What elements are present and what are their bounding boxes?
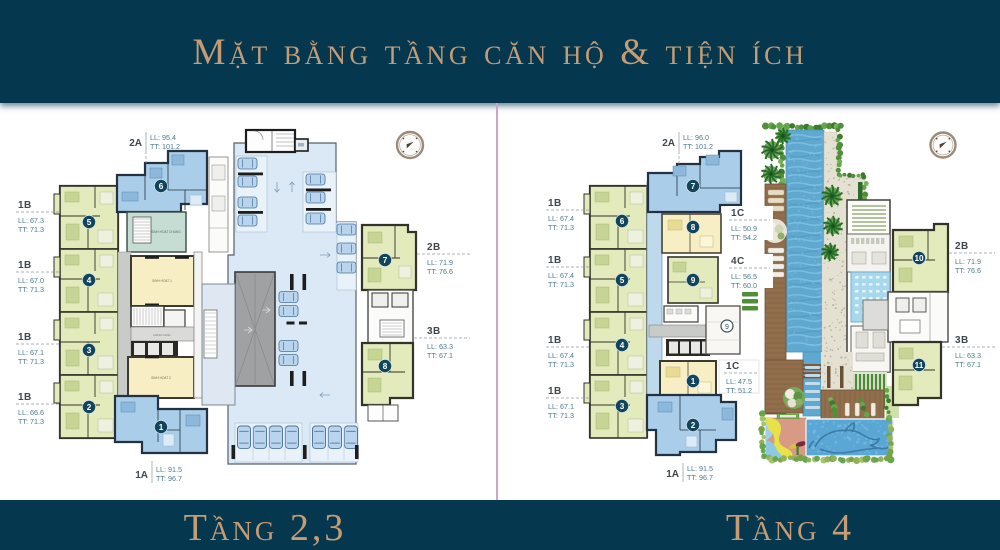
svg-text:1B: 1B bbox=[548, 386, 562, 397]
svg-text:9: 9 bbox=[725, 324, 729, 331]
svg-text:1B: 1B bbox=[18, 260, 32, 271]
svg-text:3: 3 bbox=[620, 402, 625, 411]
svg-text:1A: 1A bbox=[135, 470, 148, 481]
svg-text:TT: 60.0: TT: 60.0 bbox=[731, 281, 757, 290]
svg-text:TT: 71.3: TT: 71.3 bbox=[18, 417, 44, 426]
svg-text:8: 8 bbox=[691, 223, 696, 232]
svg-text:LL: 66.6: LL: 66.6 bbox=[18, 408, 44, 417]
svg-text:2B: 2B bbox=[955, 241, 969, 252]
svg-text:TT: 96.7: TT: 96.7 bbox=[156, 474, 182, 483]
svg-text:1B: 1B bbox=[548, 198, 562, 209]
svg-text:1: 1 bbox=[159, 423, 164, 432]
svg-text:11: 11 bbox=[915, 361, 924, 370]
svg-text:6: 6 bbox=[620, 217, 625, 226]
svg-text:5: 5 bbox=[87, 218, 92, 227]
svg-text:3B: 3B bbox=[427, 326, 441, 337]
svg-text:TT: 71.3: TT: 71.3 bbox=[548, 280, 574, 289]
svg-text:4: 4 bbox=[87, 276, 92, 285]
svg-text:TT: 71.3: TT: 71.3 bbox=[18, 357, 44, 366]
svg-text:LL: 67.4: LL: 67.4 bbox=[548, 214, 574, 223]
svg-text:SINH HOAT 1: SINH HOAT 1 bbox=[152, 279, 172, 283]
svg-text:9: 9 bbox=[691, 276, 696, 285]
svg-text:2A: 2A bbox=[129, 138, 142, 149]
svg-text:TT: 67.1: TT: 67.1 bbox=[955, 360, 981, 369]
svg-text:LL: 63.3: LL: 63.3 bbox=[955, 351, 981, 360]
svg-text:1A: 1A bbox=[666, 469, 679, 480]
svg-text:4: 4 bbox=[620, 341, 625, 350]
svg-text:LL: 47.5: LL: 47.5 bbox=[726, 377, 752, 386]
svg-text:1C: 1C bbox=[726, 361, 740, 372]
svg-text:LL: 95.4: LL: 95.4 bbox=[150, 133, 176, 142]
svg-text:TT: 71.3: TT: 71.3 bbox=[548, 360, 574, 369]
svg-text:LL: 91.5: LL: 91.5 bbox=[687, 464, 713, 473]
svg-text:10: 10 bbox=[914, 254, 924, 263]
svg-text:LL: 67.3: LL: 67.3 bbox=[18, 216, 44, 225]
svg-text:TT: 101.2: TT: 101.2 bbox=[150, 142, 180, 151]
svg-text:LL: 67.4: LL: 67.4 bbox=[548, 351, 574, 360]
svg-text:7: 7 bbox=[383, 256, 388, 265]
svg-text:LL: 67.4: LL: 67.4 bbox=[548, 271, 574, 280]
svg-text:SINH HOAT CHUNG: SINH HOAT CHUNG bbox=[151, 230, 181, 234]
svg-text:TT: 71.3: TT: 71.3 bbox=[18, 225, 44, 234]
svg-text:LL: 67.1: LL: 67.1 bbox=[548, 402, 574, 411]
svg-text:LL: 71.9: LL: 71.9 bbox=[955, 257, 981, 266]
svg-text:TT: 51.2: TT: 51.2 bbox=[726, 386, 752, 395]
svg-text:1B: 1B bbox=[548, 255, 562, 266]
svg-text:TT: 71.3: TT: 71.3 bbox=[548, 411, 574, 420]
svg-text:1B: 1B bbox=[18, 392, 32, 403]
svg-text:1B: 1B bbox=[548, 335, 562, 346]
svg-text:TT: 96.7: TT: 96.7 bbox=[687, 473, 713, 482]
svg-text:LL: 67.0: LL: 67.0 bbox=[18, 276, 44, 285]
svg-text:TT: 71.3: TT: 71.3 bbox=[548, 223, 574, 232]
svg-text:TT: 67.1: TT: 67.1 bbox=[427, 351, 453, 360]
svg-text:1B: 1B bbox=[18, 200, 32, 211]
svg-text:4C: 4C bbox=[731, 256, 745, 267]
svg-text:HANH LANG: HANH LANG bbox=[153, 333, 171, 337]
svg-text:LL: 50.9: LL: 50.9 bbox=[731, 224, 757, 233]
svg-text:TT: 71.3: TT: 71.3 bbox=[18, 285, 44, 294]
svg-text:TT: 76.6: TT: 76.6 bbox=[955, 266, 981, 275]
svg-text:TT: 54.2: TT: 54.2 bbox=[731, 233, 757, 242]
svg-text:1B: 1B bbox=[18, 332, 32, 343]
svg-text:2: 2 bbox=[691, 421, 696, 430]
svg-text:5: 5 bbox=[620, 276, 625, 285]
svg-text:LL: 67.1: LL: 67.1 bbox=[18, 348, 44, 357]
svg-text:LL: 96.0: LL: 96.0 bbox=[683, 133, 709, 142]
svg-text:2B: 2B bbox=[427, 242, 441, 253]
svg-text:2A: 2A bbox=[662, 138, 675, 149]
svg-text:8: 8 bbox=[383, 362, 388, 371]
svg-text:3B: 3B bbox=[955, 335, 969, 346]
svg-text:6: 6 bbox=[159, 182, 164, 191]
svg-text:LL: 63.3: LL: 63.3 bbox=[427, 342, 453, 351]
svg-text:LL: 91.5: LL: 91.5 bbox=[156, 465, 182, 474]
svg-text:2: 2 bbox=[87, 403, 92, 412]
svg-text:LL: 56.5: LL: 56.5 bbox=[731, 272, 757, 281]
svg-text:1: 1 bbox=[691, 377, 696, 386]
svg-text:LL: 71.9: LL: 71.9 bbox=[427, 258, 453, 267]
svg-text:7: 7 bbox=[691, 182, 696, 191]
svg-text:TT: 101.2: TT: 101.2 bbox=[683, 142, 713, 151]
svg-text:TT: 76.6: TT: 76.6 bbox=[427, 267, 453, 276]
svg-text:SINH HOAT 2: SINH HOAT 2 bbox=[151, 376, 171, 380]
svg-text:1C: 1C bbox=[731, 208, 745, 219]
svg-text:3: 3 bbox=[87, 346, 92, 355]
